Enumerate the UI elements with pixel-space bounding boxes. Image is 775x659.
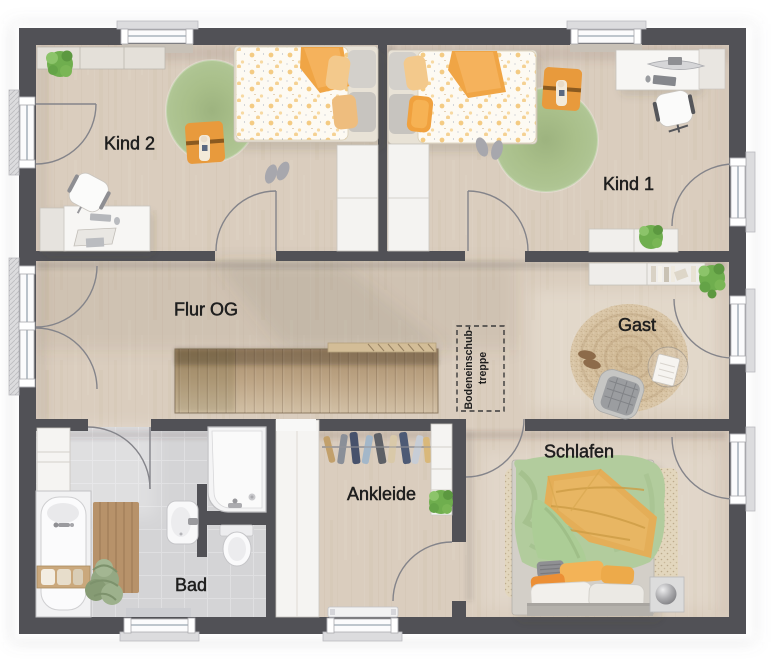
svg-text:Bad: Bad — [175, 575, 207, 595]
svg-text:treppe: treppe — [477, 352, 489, 384]
svg-text:Schlafen: Schlafen — [544, 442, 614, 462]
svg-text:Flur OG: Flur OG — [174, 300, 238, 320]
svg-text:Kind 1: Kind 1 — [603, 174, 654, 194]
svg-text:Bodeneinschub-: Bodeneinschub- — [463, 326, 475, 409]
svg-text:Gast: Gast — [618, 315, 656, 335]
svg-text:Ankleide: Ankleide — [347, 484, 416, 504]
svg-text:Kind 2: Kind 2 — [104, 134, 155, 154]
